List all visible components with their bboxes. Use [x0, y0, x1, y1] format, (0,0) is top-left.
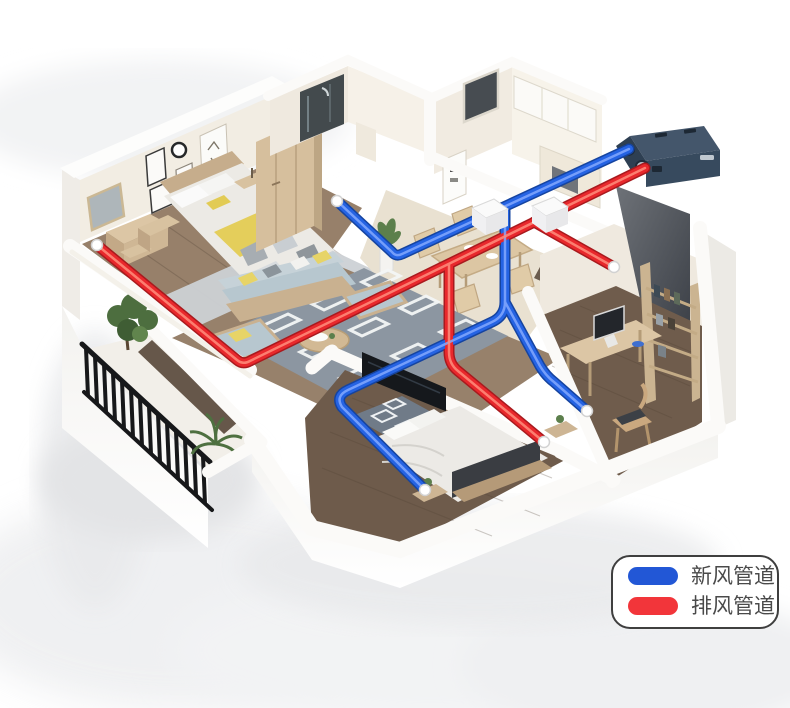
scene-canvas: 新风管道 排风管道	[0, 0, 790, 708]
unit-brand-mark	[700, 155, 714, 160]
wall-panel-detail	[450, 178, 458, 182]
legend-swatch-fresh	[628, 567, 678, 585]
unit-front-vent	[652, 166, 662, 172]
plant	[556, 415, 564, 423]
mouse-pad	[632, 341, 644, 347]
table-plant	[329, 333, 335, 339]
wall-clock	[172, 143, 186, 157]
apartment-ventilation-illustration: 新风管道 排风管道	[0, 0, 790, 708]
legend-swatch-exhaust	[628, 597, 678, 615]
legend-label-exhaust: 排风管道	[691, 595, 775, 618]
legend: 新风管道 排风管道	[612, 556, 778, 628]
legend-label-fresh: 新风管道	[691, 565, 775, 588]
plate	[486, 253, 498, 259]
